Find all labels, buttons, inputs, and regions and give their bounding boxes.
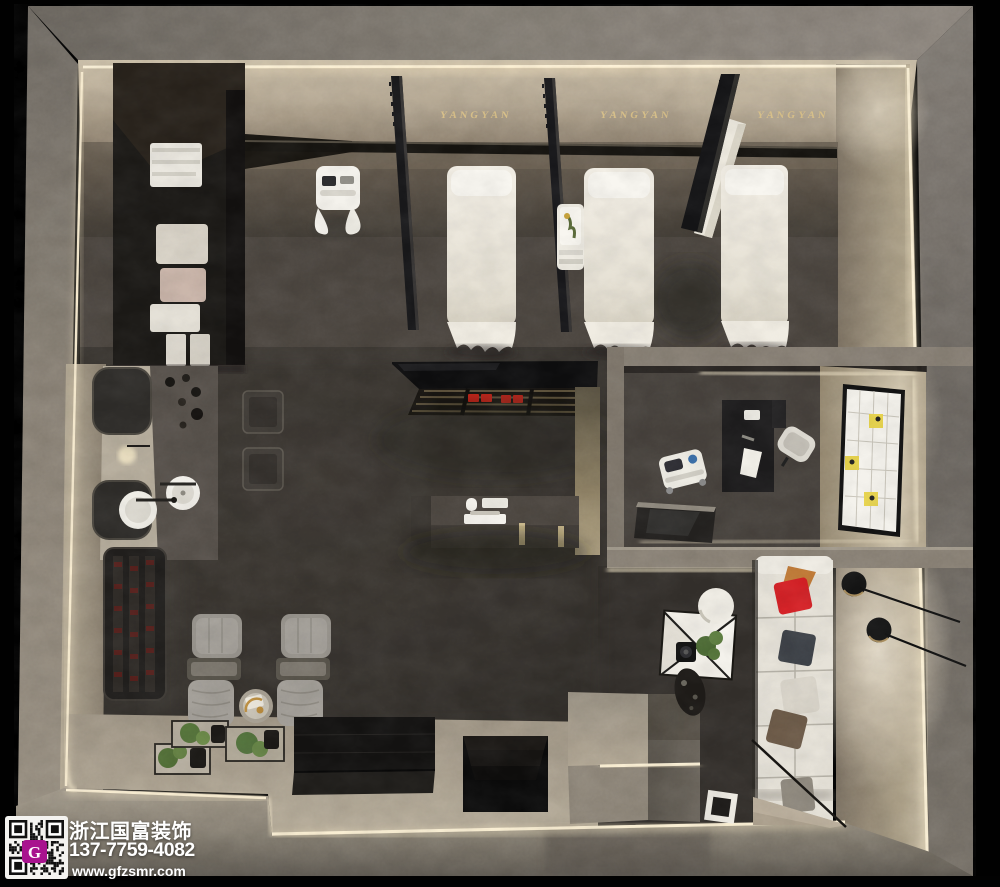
svg-text:G: G <box>28 843 41 862</box>
